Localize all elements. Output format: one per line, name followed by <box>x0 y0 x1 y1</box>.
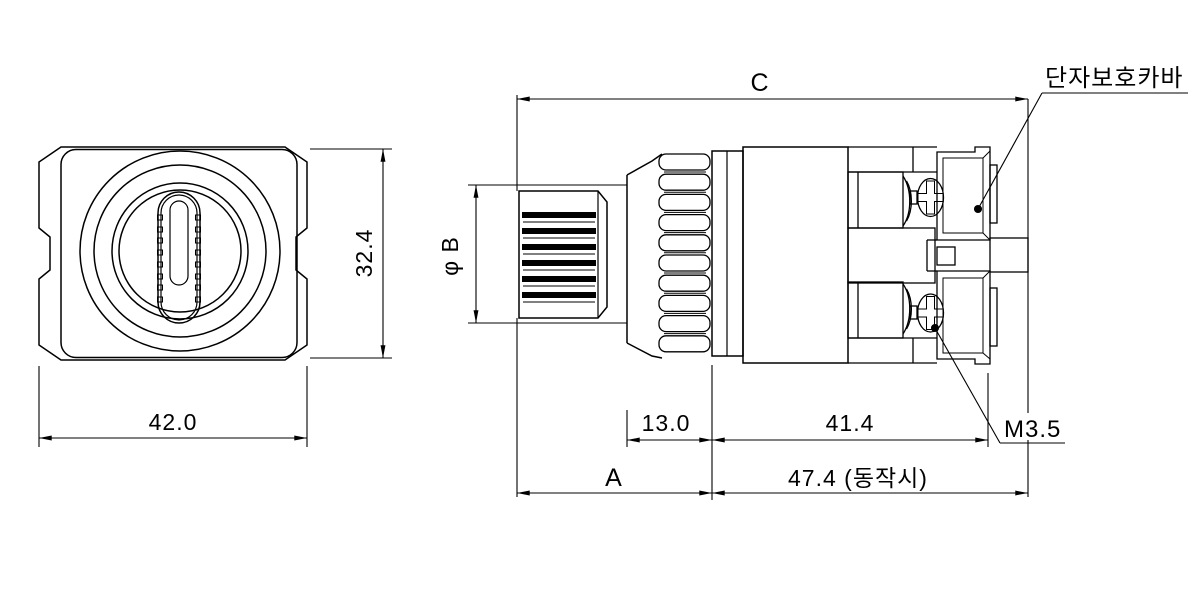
front-bezel-face <box>61 150 297 358</box>
knurled-nut <box>659 154 710 352</box>
dim-41-label: 41.4 <box>826 410 875 436</box>
dim-operating-label: 47.4 (동작시) <box>788 465 928 491</box>
dim-a-label: A <box>605 464 623 492</box>
center-section <box>848 228 1028 283</box>
dim-height-label: 32.4 <box>351 229 377 278</box>
knob-teeth <box>158 215 201 302</box>
side-bezel-ring <box>627 154 662 358</box>
dim-phi-b-label: φ B <box>437 236 463 276</box>
front-ring-4 <box>119 190 241 312</box>
leader-lines <box>932 93 1189 443</box>
terminal-screw-lower <box>918 294 944 332</box>
terminal-cover-lower <box>937 271 997 364</box>
side-knob-grip-stripes <box>522 212 596 298</box>
front-view <box>39 147 307 360</box>
technical-drawing-page: 42.0 32.4 <box>0 0 1200 600</box>
front-ring-1 <box>80 151 280 351</box>
dim-13-label: 13.0 <box>642 410 691 436</box>
knob-outline-inner <box>161 195 197 320</box>
selector-switch-drawing: 42.0 32.4 <box>0 0 1200 600</box>
front-ring-2 <box>94 165 266 337</box>
dim-width-label: 42.0 <box>149 409 198 435</box>
terminal-screw-upper <box>918 179 944 217</box>
front-ring-3 <box>112 183 248 319</box>
knob-outline-outer <box>158 192 200 323</box>
side-view <box>519 147 1028 364</box>
leader-dot-screw <box>932 325 939 332</box>
front-plate-outline <box>39 147 307 360</box>
mounting-bands <box>848 147 937 363</box>
output-tab <box>990 238 1028 272</box>
switch-body <box>743 147 848 363</box>
terminal-cover-label: 단자보호카바 <box>1045 65 1183 92</box>
dim-c-label: C <box>750 69 769 97</box>
knob-slot <box>170 201 188 285</box>
terminal-blocks <box>848 172 917 338</box>
screw-size-label: M3.5 <box>1004 416 1061 443</box>
leader-dot-cover <box>975 206 982 213</box>
terminal-cover-upper <box>937 147 997 240</box>
washer-ring <box>712 151 743 356</box>
